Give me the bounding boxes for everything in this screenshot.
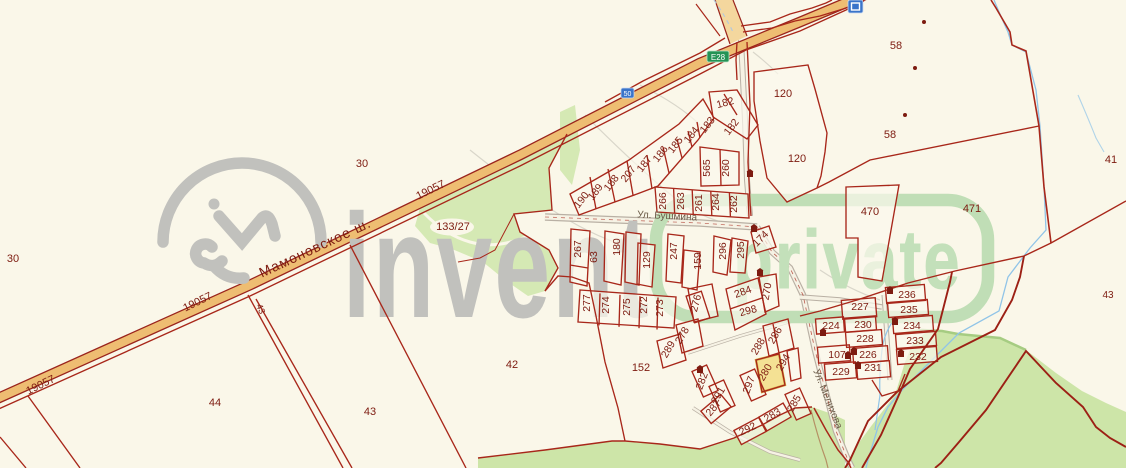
svg-text:50: 50 bbox=[624, 91, 632, 98]
svg-text:296: 296 bbox=[717, 242, 729, 260]
svg-text:470: 470 bbox=[861, 206, 879, 218]
svg-text:274: 274 bbox=[600, 296, 612, 314]
svg-text:229: 229 bbox=[832, 366, 850, 378]
svg-text:227: 227 bbox=[851, 301, 869, 313]
svg-text:107: 107 bbox=[828, 349, 846, 361]
svg-text:267: 267 bbox=[572, 240, 584, 258]
svg-text:224: 224 bbox=[822, 320, 840, 332]
svg-text:226: 226 bbox=[859, 349, 877, 361]
svg-text:44: 44 bbox=[209, 397, 221, 409]
svg-text:133/27: 133/27 bbox=[436, 221, 470, 233]
svg-text:471: 471 bbox=[963, 203, 981, 215]
svg-text:58: 58 bbox=[890, 40, 902, 52]
svg-text:43: 43 bbox=[364, 406, 376, 418]
svg-text:120: 120 bbox=[788, 153, 806, 165]
svg-text:231: 231 bbox=[864, 362, 882, 374]
svg-text:273: 273 bbox=[654, 299, 666, 317]
svg-text:277: 277 bbox=[581, 294, 593, 312]
svg-text:264: 264 bbox=[710, 193, 722, 211]
svg-text:247: 247 bbox=[668, 242, 680, 260]
svg-text:260: 260 bbox=[720, 159, 732, 177]
svg-text:236: 236 bbox=[898, 289, 916, 301]
svg-text:180: 180 bbox=[611, 238, 623, 256]
svg-text:235: 235 bbox=[900, 304, 918, 316]
svg-text:228: 228 bbox=[856, 333, 874, 345]
svg-text:230: 230 bbox=[854, 319, 872, 331]
svg-text:63: 63 bbox=[588, 251, 600, 263]
svg-text:129: 129 bbox=[641, 251, 653, 269]
svg-text:43: 43 bbox=[1102, 290, 1114, 301]
svg-text:152: 152 bbox=[632, 362, 650, 374]
svg-text:263: 263 bbox=[675, 192, 687, 210]
svg-text:232: 232 bbox=[909, 351, 927, 363]
svg-text:234: 234 bbox=[903, 320, 921, 332]
svg-text:261: 261 bbox=[693, 194, 705, 212]
svg-text:159: 159 bbox=[692, 252, 704, 270]
svg-text:262: 262 bbox=[728, 195, 740, 213]
svg-text:565: 565 bbox=[701, 159, 713, 177]
svg-text:E28: E28 bbox=[711, 53, 726, 62]
svg-text:41: 41 bbox=[1105, 154, 1117, 166]
svg-text:275: 275 bbox=[621, 298, 633, 316]
svg-text:42: 42 bbox=[506, 359, 518, 371]
svg-text:295: 295 bbox=[735, 241, 747, 259]
svg-text:30: 30 bbox=[7, 253, 19, 265]
svg-text:58: 58 bbox=[884, 129, 896, 141]
svg-text:233: 233 bbox=[906, 335, 924, 347]
svg-text:272: 272 bbox=[638, 296, 650, 314]
svg-text:30: 30 bbox=[356, 158, 368, 170]
svg-text:120: 120 bbox=[774, 88, 792, 100]
svg-text:266: 266 bbox=[657, 192, 669, 210]
